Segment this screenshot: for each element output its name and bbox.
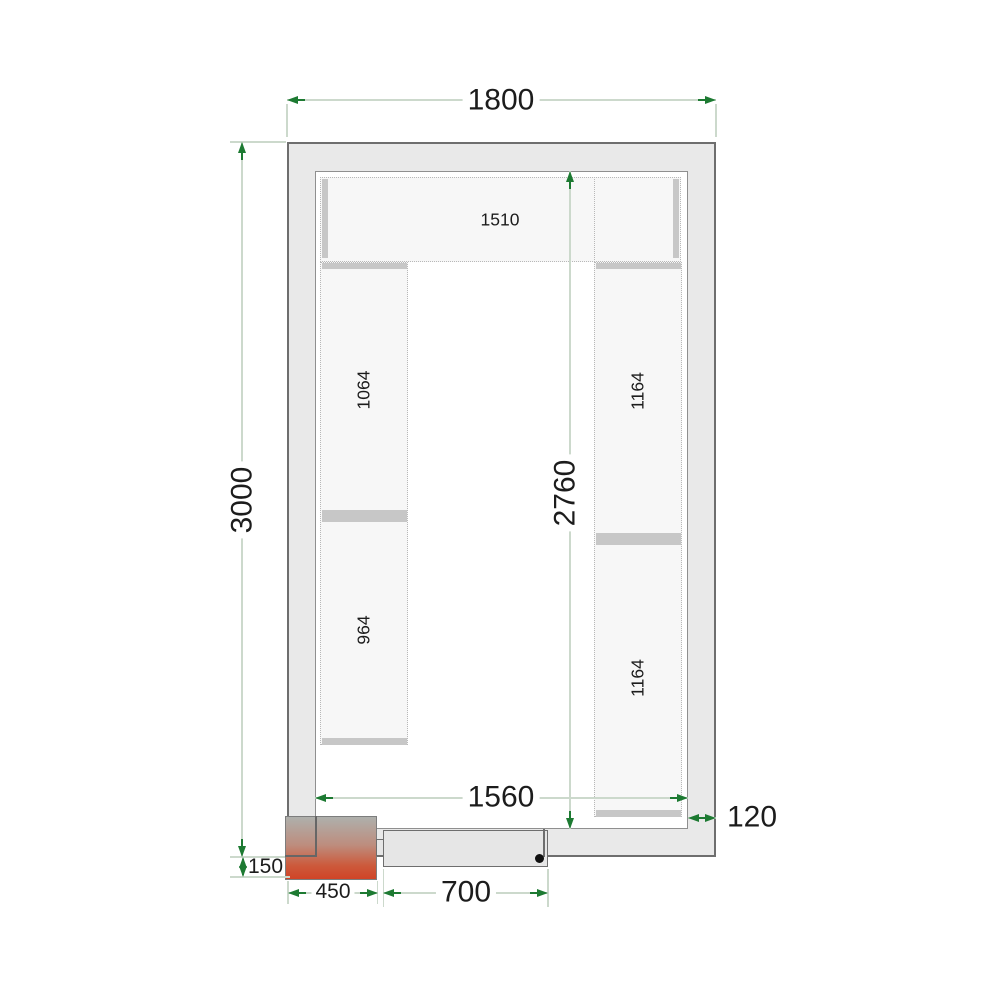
dim-label-door-width: 700 [436, 876, 496, 908]
ext-line-700-left [383, 869, 384, 907]
shelf-left-column [320, 262, 408, 745]
dim-arrow-3000-bottom [238, 846, 246, 857]
shelf-right-upper-label: 1164 [628, 372, 649, 410]
shelf-top-left-upright [322, 179, 328, 258]
dim-label-unit-width: 450 [311, 881, 354, 903]
dim-arrow-120-right [705, 814, 716, 822]
shelf-right-bottom-support [596, 810, 681, 817]
dim-arrow-1800-left [287, 96, 298, 104]
dim-arrow-700-right [537, 889, 548, 897]
ext-line-700-right [547, 869, 548, 907]
door-leaf [383, 830, 548, 867]
dim-label-wall-thickness: 120 [727, 801, 777, 833]
shelf-top-label: 1510 [481, 210, 520, 231]
shelf-left-lower-label: 964 [354, 615, 375, 644]
shelf-right-top-support [596, 263, 681, 269]
shelf-right-edge-continuation [594, 177, 595, 262]
door-handle-dot [535, 854, 544, 863]
shelf-left-bottom-support [322, 738, 407, 745]
dim-label-unit-protrusion: 150 [248, 856, 283, 878]
shelf-right-divider [596, 533, 681, 545]
ext-line-1800-right [715, 104, 716, 137]
dim-arrow-2760-top [566, 171, 574, 182]
wall-corner-line-horizontal [285, 855, 316, 857]
dim-arrow-150-bottom [239, 866, 247, 877]
shelf-left-top-support [322, 263, 407, 269]
refrigeration-unit [285, 816, 377, 880]
dim-arrow-2760-bottom [566, 818, 574, 829]
dim-label-inner-length: 2760 [549, 455, 581, 532]
dim-label-inner-width: 1560 [463, 781, 540, 813]
shelf-left-upper-label: 1064 [354, 371, 375, 410]
dim-arrow-450-right [367, 889, 378, 897]
ext-line-1800-left [286, 104, 287, 137]
dim-arrow-1800-right [705, 96, 716, 104]
cold-room-plan: 1510 1064 964 1164 1164 1800 3000 2760 1… [0, 0, 1000, 1000]
shelf-right-lower-label: 1164 [628, 659, 649, 697]
dim-arrow-3000-top [238, 142, 246, 153]
dim-arrow-1560-left [315, 794, 326, 802]
dim-label-outer-width: 1800 [463, 84, 540, 116]
door-hinge-notch [376, 839, 384, 856]
dim-label-outer-length: 3000 [226, 462, 258, 539]
wall-corner-line-vertical [315, 816, 317, 857]
dim-arrow-700-left [383, 889, 394, 897]
shelf-left-divider [322, 510, 407, 522]
door-jamb-line [543, 829, 545, 857]
dim-arrow-450-left [288, 889, 299, 897]
shelf-top-right-upright [673, 179, 679, 258]
dim-arrow-1560-right [677, 794, 688, 802]
